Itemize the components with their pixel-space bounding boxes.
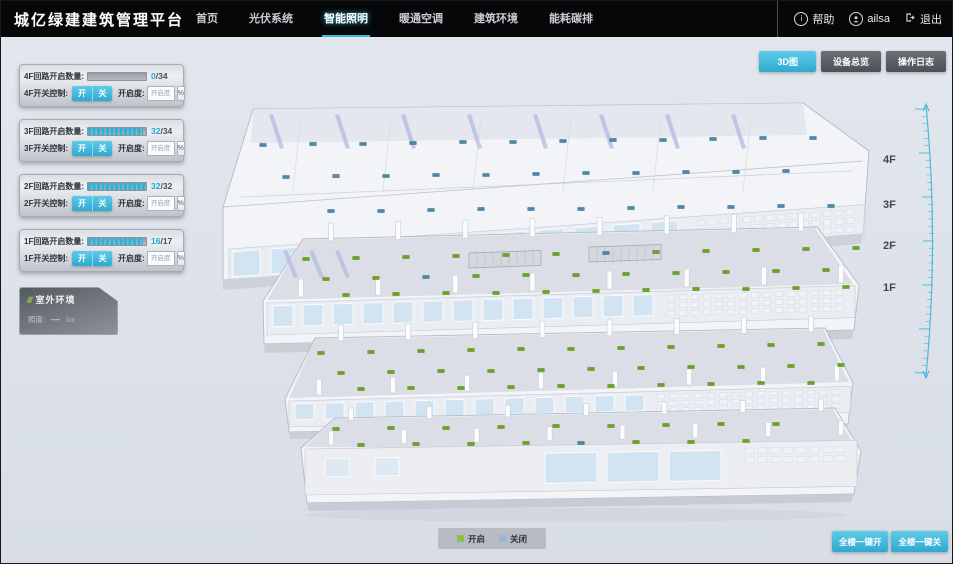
light-marker-on[interactable] (738, 365, 745, 369)
logout-button[interactable]: 退出 (905, 11, 942, 27)
light-marker-off[interactable] (678, 205, 685, 209)
switch-off-button[interactable]: 关 (92, 141, 112, 156)
light-marker-on[interactable] (768, 343, 775, 347)
light-marker-on[interactable] (388, 370, 395, 374)
light-marker-off[interactable] (810, 136, 817, 140)
nav-item-home[interactable]: 首页 (194, 1, 220, 37)
light-marker-off[interactable] (378, 209, 385, 213)
light-marker-on[interactable] (618, 346, 625, 350)
legend-off-label: 关闭 (510, 533, 527, 545)
light-marker-off[interactable] (283, 175, 290, 179)
light-marker-off[interactable] (478, 207, 485, 211)
light-marker-on[interactable] (523, 441, 530, 445)
light-marker-on[interactable] (503, 253, 510, 257)
dim-level-label: 开启度: (118, 88, 145, 99)
light-marker-off[interactable] (460, 140, 467, 144)
light-marker-on[interactable] (553, 252, 560, 256)
light-marker-on[interactable] (623, 272, 630, 276)
light-marker-on[interactable] (723, 270, 730, 274)
light-marker-off[interactable] (603, 251, 610, 255)
light-marker-on[interactable] (663, 423, 670, 427)
light-marker-on[interactable] (658, 383, 665, 387)
light-marker-on[interactable] (668, 345, 675, 349)
dim-level-input[interactable] (147, 86, 175, 101)
circuit-count-value: 0/34 (151, 71, 168, 81)
illuminance-label: 照度: (28, 314, 45, 325)
percent-button[interactable]: % (177, 86, 185, 101)
illuminance-value: — (51, 314, 60, 324)
light-marker-on[interactable] (568, 347, 575, 351)
light-marker-on[interactable] (718, 344, 725, 348)
switch-buttons: 开 关 (72, 141, 112, 156)
light-marker-on[interactable] (443, 426, 450, 430)
switch-on-button[interactable]: 开 (72, 196, 92, 211)
percent-button[interactable]: % (177, 141, 185, 156)
light-marker-on[interactable] (743, 439, 750, 443)
operation-log-button[interactable]: 操作日志 (886, 51, 946, 72)
light-marker-on[interactable] (353, 256, 360, 260)
light-marker-on[interactable] (608, 384, 615, 388)
light-marker-on[interactable] (523, 273, 530, 277)
light-marker-on[interactable] (758, 381, 765, 385)
light-marker-on[interactable] (743, 287, 750, 291)
light-marker-on[interactable] (608, 424, 615, 428)
switch-off-button[interactable]: 关 (92, 196, 112, 211)
light-marker-on[interactable] (633, 440, 640, 444)
dim-level-input[interactable] (147, 141, 175, 156)
user-menu[interactable]: ailsa (849, 12, 890, 26)
light-marker-on[interactable] (688, 440, 695, 444)
switch-on-button[interactable]: 开 (72, 251, 92, 266)
light-marker-on[interactable] (413, 442, 420, 446)
light-marker-on[interactable] (403, 255, 410, 259)
dim-level-input[interactable] (147, 251, 175, 266)
light-marker-off[interactable] (578, 441, 585, 445)
light-marker-off[interactable] (733, 170, 740, 174)
light-marker-on[interactable] (793, 286, 800, 290)
nav-item-building-env[interactable]: 建筑环境 (472, 1, 520, 37)
light-marker-on[interactable] (453, 254, 460, 258)
nav-item-energy-carbon[interactable]: 能耗碳排 (547, 1, 595, 37)
light-marker-off[interactable] (683, 170, 690, 174)
header-bar: 城亿绿建建筑管理平台 首页 光伏系统 智能照明 暖通空调 建筑环境 能耗碳排 i… (1, 1, 952, 37)
switch-off-button[interactable]: 关 (92, 86, 112, 101)
light-marker-on[interactable] (588, 367, 595, 371)
light-marker-on[interactable] (708, 382, 715, 386)
light-marker-on[interactable] (388, 426, 395, 430)
light-marker-off[interactable] (260, 143, 267, 147)
floor-panel-4f: 4F回路开启数量: 0/34 4F开关控制: 开 关 开启度: % (19, 64, 184, 107)
percent-button[interactable]: % (177, 196, 185, 211)
light-marker-on[interactable] (823, 268, 830, 272)
light-marker-off[interactable] (578, 207, 585, 211)
username: ailsa (867, 13, 890, 25)
light-marker-on[interactable] (593, 289, 600, 293)
light-marker-on[interactable] (753, 248, 760, 252)
light-marker-on[interactable] (493, 291, 500, 295)
light-marker-on[interactable] (323, 277, 330, 281)
nav-item-smart-lighting[interactable]: 智能照明 (322, 1, 370, 37)
all-off-button[interactable]: 全楼一键关 (891, 531, 948, 552)
device-overview-button[interactable]: 设备总览 (821, 51, 881, 72)
legend-on-swatch (457, 535, 464, 542)
light-marker-on[interactable] (438, 369, 445, 373)
circuit-count-value: 32/32 (151, 181, 172, 191)
circuit-progress-bar (87, 72, 147, 81)
light-marker-off[interactable] (828, 204, 835, 208)
light-marker-off[interactable] (410, 141, 417, 145)
switch-buttons: 开 关 (72, 251, 112, 266)
light-marker-on[interactable] (643, 288, 650, 292)
light-marker-on[interactable] (343, 293, 350, 297)
nav-item-hvac[interactable]: 暖通空调 (397, 1, 445, 37)
circuit-count-value: 16/17 (151, 236, 172, 246)
main-nav: 首页 光伏系统 智能照明 暖通空调 建筑环境 能耗碳排 (194, 1, 595, 37)
light-marker-off[interactable] (483, 173, 490, 177)
switch-off-button[interactable]: 关 (92, 251, 112, 266)
floor-label-3f: 3F (883, 199, 896, 211)
light-marker-on[interactable] (393, 292, 400, 296)
help-label: 帮助 (812, 11, 834, 27)
help-icon: i (794, 12, 808, 26)
switch-buttons: 开 关 (72, 196, 112, 211)
light-marker-on[interactable] (653, 250, 660, 254)
light-marker-on[interactable] (573, 273, 580, 277)
light-marker-off[interactable] (360, 142, 367, 146)
light-marker-on[interactable] (303, 257, 310, 261)
switch-control-label: 2F开关控制: (24, 198, 68, 209)
light-marker-on[interactable] (808, 381, 815, 385)
light-marker-on[interactable] (638, 366, 645, 370)
slashes-icon: /// (27, 295, 32, 305)
light-marker-on[interactable] (333, 427, 340, 431)
light-marker-off[interactable] (633, 171, 640, 175)
light-marker-off[interactable] (510, 140, 517, 144)
switch-control-label: 4F开关控制: (24, 88, 68, 99)
light-marker-off[interactable] (433, 173, 440, 177)
light-marker-on[interactable] (803, 247, 810, 251)
light-marker-off[interactable] (333, 174, 340, 178)
light-marker-on[interactable] (358, 387, 365, 391)
light-marker-on[interactable] (703, 249, 710, 253)
light-marker-off[interactable] (310, 142, 317, 146)
legend-on-item: 开启 (457, 533, 485, 545)
switch-on-button[interactable]: 开 (72, 141, 92, 156)
light-marker-off[interactable] (428, 208, 435, 212)
dim-level-label: 开启度: (118, 253, 145, 264)
light-marker-on[interactable] (368, 350, 375, 354)
light-marker-off[interactable] (660, 138, 667, 142)
light-marker-on[interactable] (338, 371, 345, 375)
light-marker-on[interactable] (498, 425, 505, 429)
light-marker-on[interactable] (418, 349, 425, 353)
light-marker-off[interactable] (778, 204, 785, 208)
light-marker-on[interactable] (688, 365, 695, 369)
light-marker-on[interactable] (443, 291, 450, 295)
light-marker-on[interactable] (558, 384, 565, 388)
light-marker-off[interactable] (328, 209, 335, 213)
light-marker-on[interactable] (818, 342, 825, 346)
dim-level-input[interactable] (147, 196, 175, 211)
legend-off-swatch (499, 535, 506, 542)
light-marker-on[interactable] (853, 246, 860, 250)
switch-on-button[interactable]: 开 (72, 86, 92, 101)
circuit-count-label: 2F回路开启数量: (24, 181, 84, 192)
light-marker-on[interactable] (408, 386, 415, 390)
floor-label-2f: 2F (883, 240, 896, 252)
light-marker-on[interactable] (838, 363, 845, 367)
light-marker-on[interactable] (468, 348, 475, 352)
light-marker-off[interactable] (783, 169, 790, 173)
building-ground-shadow (306, 508, 846, 522)
light-marker-off[interactable] (533, 172, 540, 176)
app-root: 城亿绿建建筑管理平台 首页 光伏系统 智能照明 暖通空调 建筑环境 能耗碳排 i… (0, 0, 953, 564)
view-3d-button[interactable]: 3D图 (759, 51, 816, 72)
circuit-count-value: 32/34 (151, 126, 172, 136)
floor-label-1f: 1F (883, 282, 896, 294)
light-marker-off[interactable] (583, 171, 590, 175)
light-marker-on[interactable] (473, 274, 480, 278)
nav-item-pv-system[interactable]: 光伏系统 (247, 1, 295, 37)
light-marker-off[interactable] (383, 174, 390, 178)
circuit-progress-bar (87, 237, 147, 246)
light-marker-off[interactable] (728, 205, 735, 209)
view-mode-buttons: 3D图 设备总览 操作日志 (759, 51, 946, 72)
circuit-progress-bar (87, 127, 147, 136)
switch-control-label: 3F开关控制: (24, 143, 68, 154)
light-marker-on[interactable] (553, 424, 560, 428)
whole-building-buttons: 全楼一键开 全楼一键关 (832, 531, 948, 552)
light-marker-off[interactable] (423, 275, 430, 279)
light-marker-on[interactable] (673, 271, 680, 275)
dim-level-label: 开启度: (118, 198, 145, 209)
light-marker-off[interactable] (560, 139, 567, 143)
light-marker-on[interactable] (773, 422, 780, 426)
switch-buttons: 开 关 (72, 86, 112, 101)
circuit-count-label: 1F回路开启数量: (24, 236, 84, 247)
floor-ruler[interactable] (915, 104, 934, 378)
light-marker-on[interactable] (718, 422, 725, 426)
light-marker-on[interactable] (468, 442, 475, 446)
floor-panel-2f: 2F回路开启数量: 32/32 2F开关控制: 开 关 开启度: % (19, 174, 184, 217)
circuit-progress-bar (87, 182, 147, 191)
switch-control-label: 1F开关控制: (24, 253, 68, 264)
light-marker-on[interactable] (788, 364, 795, 368)
light-marker-off[interactable] (610, 138, 617, 142)
light-marker-on[interactable] (693, 287, 700, 291)
help-button[interactable]: i 帮助 (794, 11, 834, 27)
light-status-legend: 开启 关闭 (438, 528, 546, 549)
light-marker-on[interactable] (488, 369, 495, 373)
floor-panel-3f: 3F回路开启数量: 32/34 3F开关控制: 开 关 开启度: % (19, 119, 184, 162)
light-marker-on[interactable] (318, 351, 325, 355)
light-marker-on[interactable] (458, 386, 465, 390)
light-marker-on[interactable] (543, 290, 550, 294)
floor-panel-1f: 1F回路开启数量: 16/17 1F开关控制: 开 关 开启度: % (19, 229, 184, 272)
illuminance-unit: lux (66, 317, 75, 324)
circuit-count-label: 3F回路开启数量: (24, 126, 84, 137)
light-marker-off[interactable] (528, 207, 535, 211)
floor-label-4f: 4F (883, 154, 896, 166)
legend-on-label: 开启 (468, 533, 485, 545)
light-marker-off[interactable] (760, 136, 767, 140)
app-title: 城亿绿建建筑管理平台 (14, 9, 184, 30)
percent-button[interactable]: % (177, 251, 185, 266)
light-marker-on[interactable] (358, 443, 365, 447)
all-on-button[interactable]: 全楼一键开 (832, 531, 889, 552)
light-marker-on[interactable] (538, 368, 545, 372)
light-marker-off[interactable] (628, 206, 635, 210)
circuit-count-label: 4F回路开启数量: (24, 71, 84, 82)
outdoor-env-panel: /// 室外环境 照度: — lux (19, 287, 118, 335)
light-marker-on[interactable] (843, 285, 850, 289)
user-area: i 帮助 ailsa 退出 (777, 1, 942, 37)
light-marker-on[interactable] (373, 276, 380, 280)
outdoor-panel-title: 室外环境 (36, 293, 76, 306)
light-marker-on[interactable] (518, 347, 525, 351)
dim-level-label: 开启度: (118, 143, 145, 154)
legend-off-item: 关闭 (499, 533, 527, 545)
user-icon (849, 12, 863, 26)
light-marker-on[interactable] (773, 269, 780, 273)
light-marker-off[interactable] (710, 137, 717, 141)
logout-icon (905, 12, 916, 26)
logout-label: 退出 (920, 11, 942, 27)
light-marker-on[interactable] (508, 385, 515, 389)
